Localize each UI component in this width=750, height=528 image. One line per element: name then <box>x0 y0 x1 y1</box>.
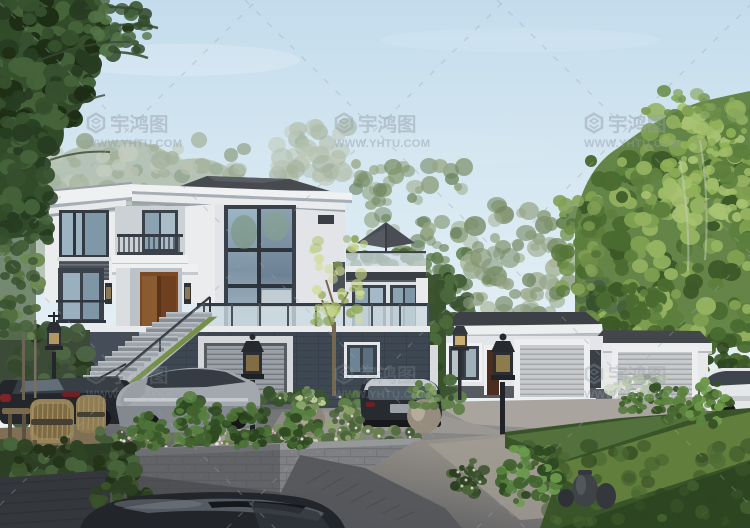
svg-text:WWW.YHTU.COM: WWW.YHTU.COM <box>584 138 680 150</box>
svg-text:宇鸿图: 宇鸿图 <box>358 364 417 387</box>
svg-text:WWW.YHTU.COM: WWW.YHTU.COM <box>334 389 430 401</box>
svg-text:宇鸿图: 宇鸿图 <box>110 113 169 136</box>
svg-text:宇鸿图: 宇鸿图 <box>608 364 667 387</box>
svg-text:WWW.YHTU.COM: WWW.YHTU.COM <box>86 138 182 150</box>
svg-text:WWW.YHTU.COM: WWW.YHTU.COM <box>584 389 680 401</box>
svg-text:宇鸿图: 宇鸿图 <box>608 113 667 136</box>
svg-text:WWW.YHTU.COM: WWW.YHTU.COM <box>86 389 182 401</box>
svg-text:宇鸿图: 宇鸿图 <box>110 364 169 387</box>
svg-text:宇鸿图: 宇鸿图 <box>358 113 417 136</box>
svg-text:WWW.YHTU.COM: WWW.YHTU.COM <box>334 138 430 150</box>
